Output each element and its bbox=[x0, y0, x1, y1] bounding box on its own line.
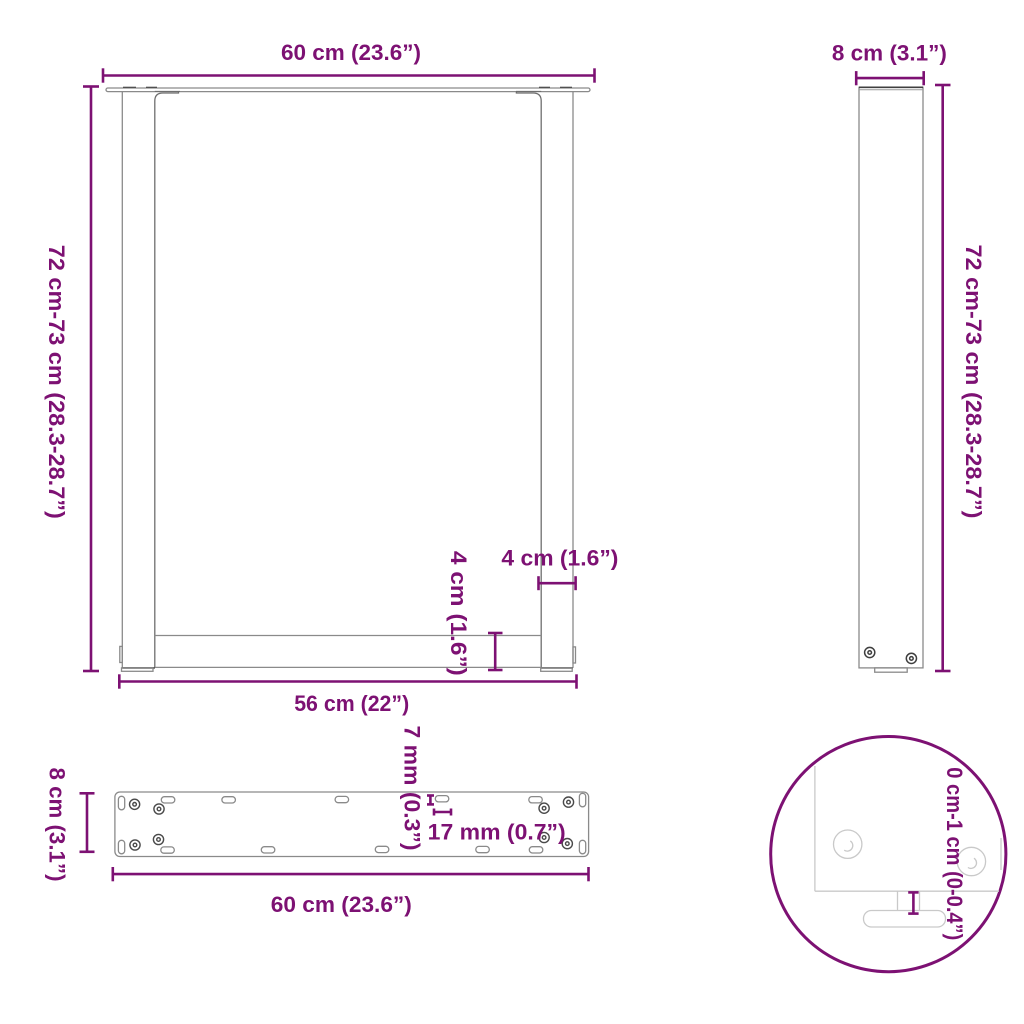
svg-text:56 cm (22”): 56 cm (22”) bbox=[294, 691, 409, 716]
svg-text:72 cm-73 cm (28.3-28.7”): 72 cm-73 cm (28.3-28.7”) bbox=[961, 245, 986, 519]
svg-text:17 mm (0.7”): 17 mm (0.7”) bbox=[428, 820, 566, 845]
svg-text:4 cm (1.6”): 4 cm (1.6”) bbox=[501, 546, 618, 571]
svg-text:7 mm (0.3”): 7 mm (0.3”) bbox=[400, 726, 425, 851]
svg-text:8 cm (3.1”): 8 cm (3.1”) bbox=[45, 768, 70, 882]
svg-text:8 cm (3.1”): 8 cm (3.1”) bbox=[832, 40, 947, 65]
svg-text:72 cm-73 cm (28.3-28.7”): 72 cm-73 cm (28.3-28.7”) bbox=[44, 245, 69, 519]
svg-text:4 cm (1.6”): 4 cm (1.6”) bbox=[446, 551, 471, 676]
svg-text:60 cm (23.6”): 60 cm (23.6”) bbox=[271, 892, 412, 917]
svg-text:0 cm-1 cm (0-0.4”): 0 cm-1 cm (0-0.4”) bbox=[942, 767, 967, 940]
svg-text:60 cm (23.6”): 60 cm (23.6”) bbox=[281, 40, 421, 65]
